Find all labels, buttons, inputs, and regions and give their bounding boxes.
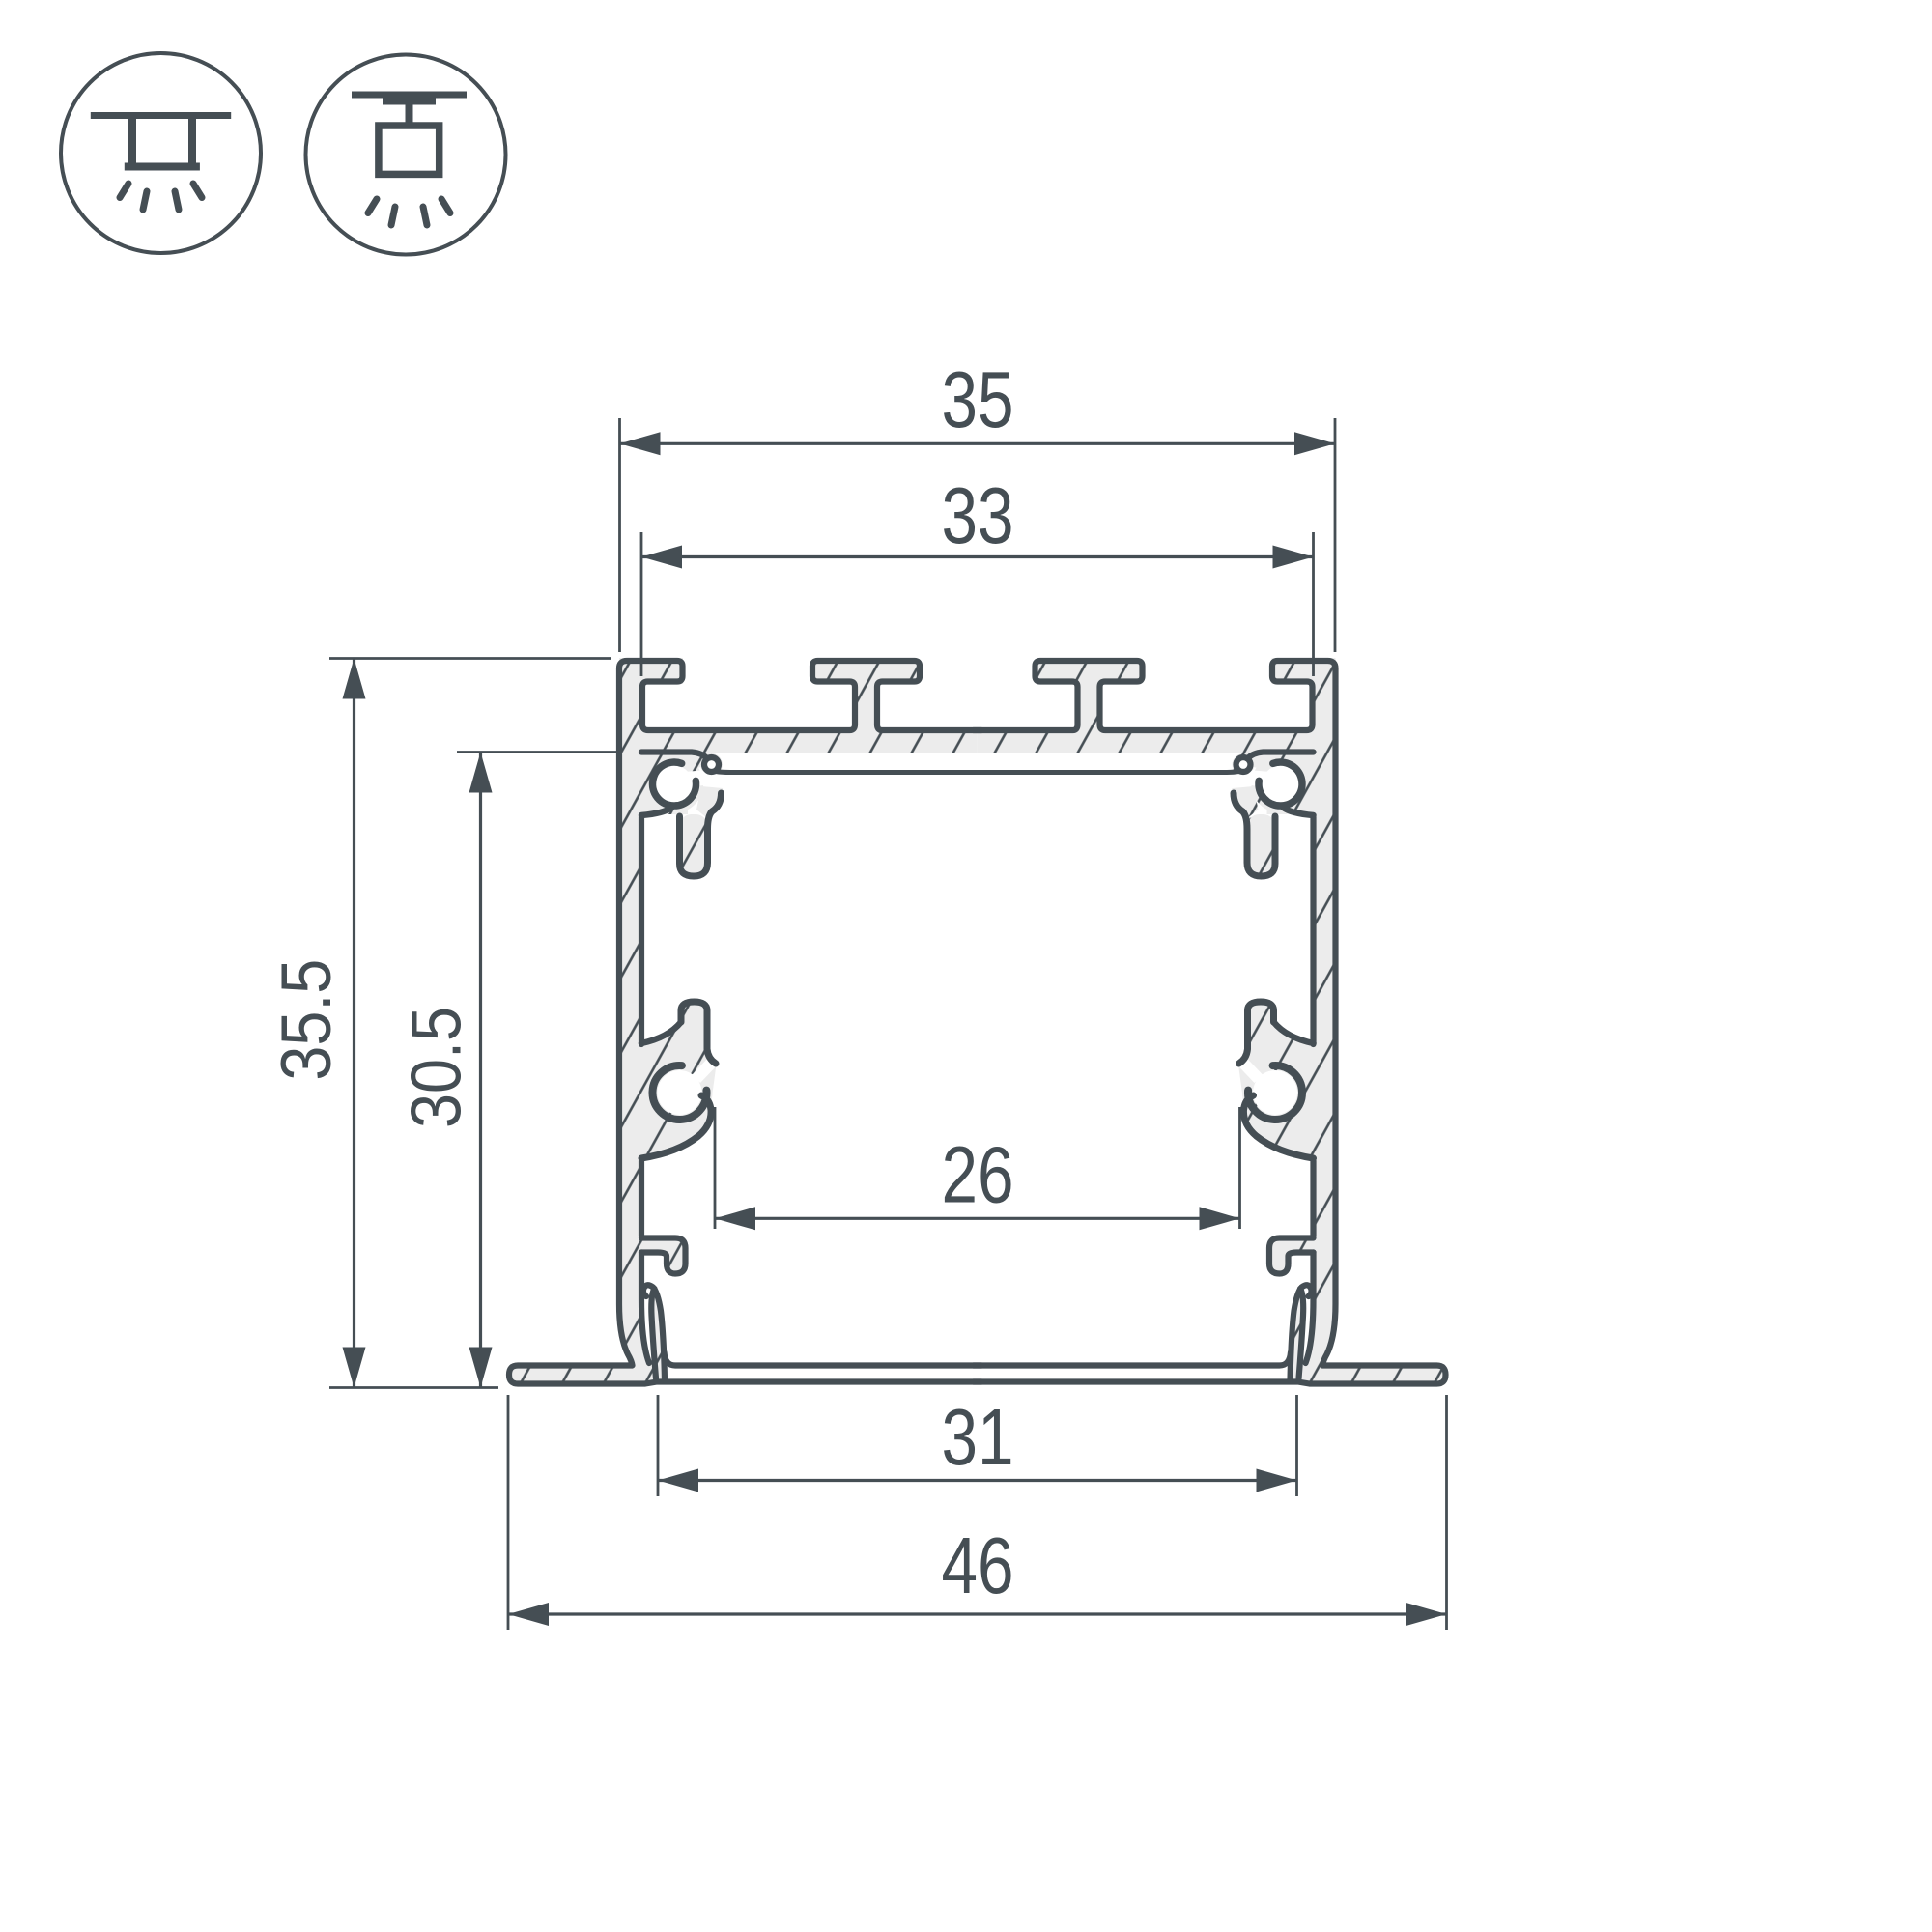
svg-text:26: 26 — [942, 1130, 1014, 1220]
svg-text:30.5: 30.5 — [398, 1007, 476, 1128]
svg-text:31: 31 — [942, 1392, 1014, 1482]
svg-text:35.5: 35.5 — [268, 959, 346, 1081]
svg-text:35: 35 — [942, 355, 1014, 444]
svg-text:33: 33 — [942, 470, 1014, 560]
svg-text:46: 46 — [942, 1520, 1014, 1610]
